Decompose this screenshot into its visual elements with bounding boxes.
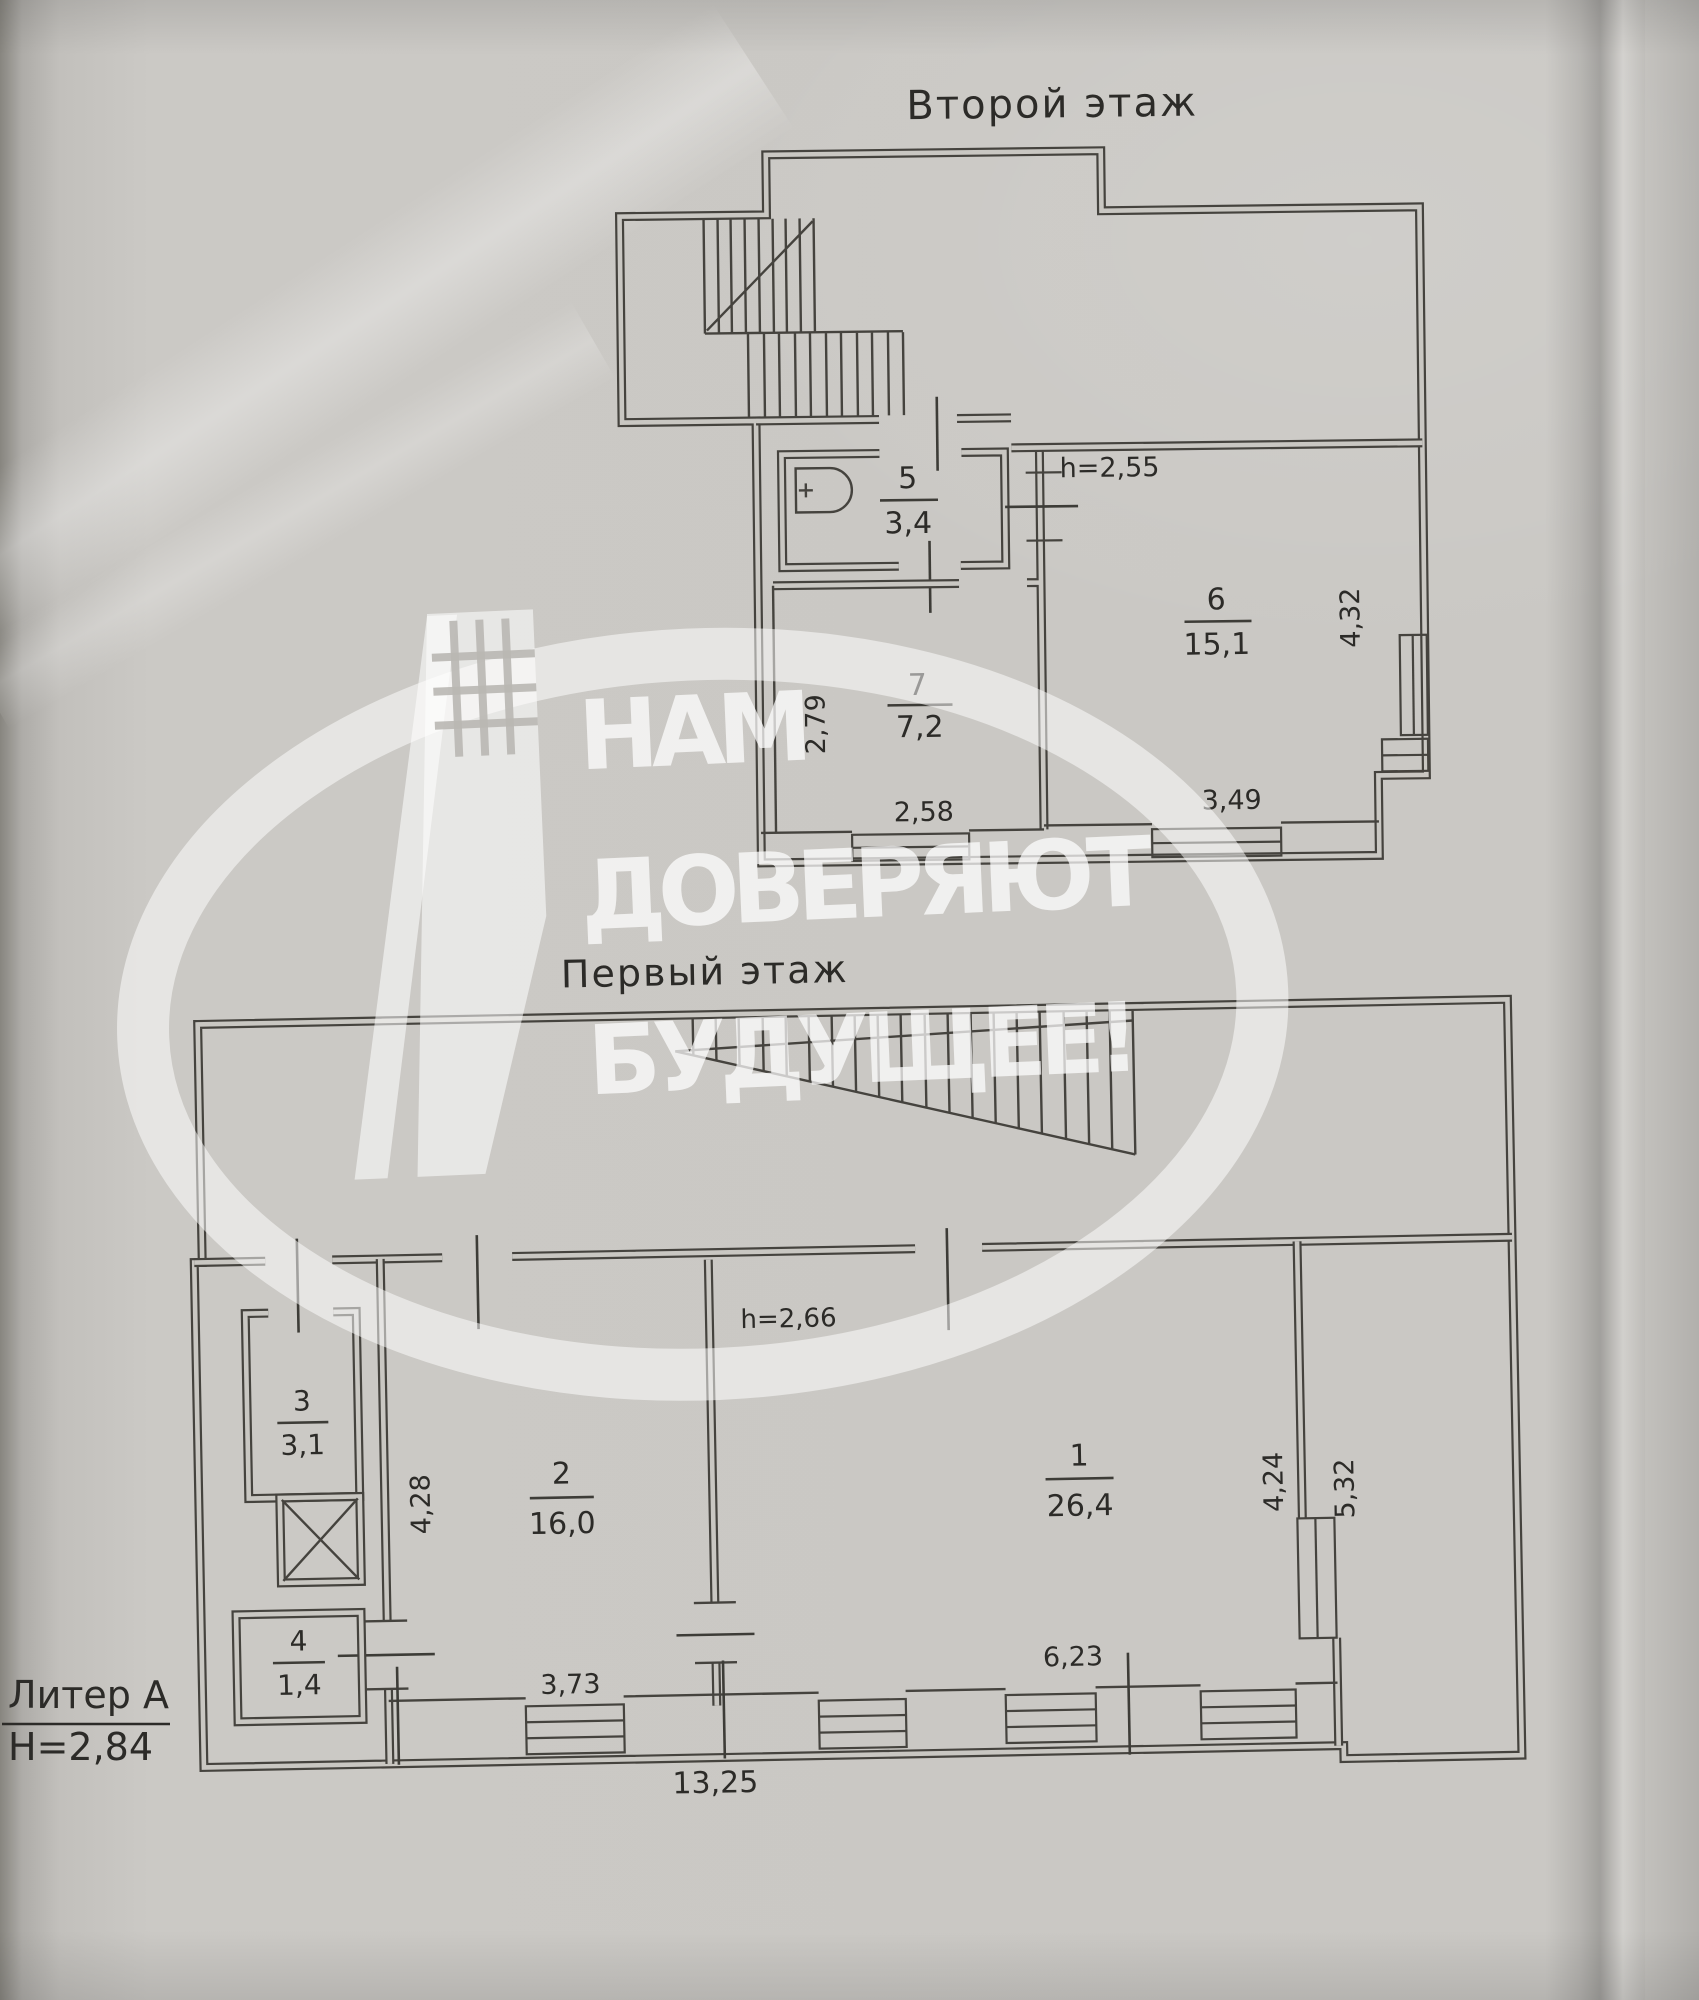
dim-room6-depth: 4,32 [1335,587,1367,647]
shadow-bottom [0,1930,1699,2000]
room7-area: 7,2 [896,710,944,746]
dim-room2-depth: 4,28 [405,1474,437,1535]
floor2-ceiling-height: h=2,55 [1059,452,1159,484]
room2-number: 2 [551,1456,571,1491]
floor1-bottom-walls [389,1683,1338,1701]
stove-icon [280,1496,362,1583]
door-tick [676,1634,754,1635]
room6-number: 6 [1206,582,1226,617]
window-symbol [819,1699,907,1749]
floor2-hall-wall [756,396,1012,473]
floor-plan-drawing: Второй этаж [0,0,1699,2000]
door-tick [937,397,938,471]
room6-area: 15,1 [1183,627,1250,663]
room2-label: 2 16,0 [528,1456,596,1542]
window-symbol [1201,1689,1297,1739]
scanned-floor-plan-page: Второй этаж [0,0,1699,2000]
window-symbol [1382,739,1428,772]
dim-room7-width: 2,58 [894,797,954,829]
legend-building: Литер А [8,1673,169,1717]
paper-edge [1645,0,1699,2000]
dim-tick [723,1660,725,1758]
room3-number: 3 [293,1384,311,1417]
room3-label: 3 3,1 [277,1384,329,1462]
watermark-logo [330,609,557,1179]
dim-tick [1128,1653,1130,1755]
room6-walls [1011,443,1422,448]
room6-label: 6 15,1 [1183,582,1252,663]
legend-floor-height: Н=2,84 [8,1725,153,1769]
window-symbol [1297,1518,1336,1639]
staircase-floor2 [704,217,904,417]
door-tick [477,1235,479,1329]
room4-label: 4 1,4 [272,1624,325,1702]
window-symbol [526,1704,625,1754]
room3-area: 3,1 [280,1428,325,1462]
dim-total-width: 13,25 [672,1765,759,1802]
shadow-top [0,0,1699,55]
dim-side: 5,32 [1329,1458,1361,1519]
room4-area: 1,4 [277,1668,322,1702]
room4-number: 4 [289,1624,307,1657]
room1-label: 1 26,4 [1045,1438,1115,1524]
legend: Литер А Н=2,84 [2,1673,170,1769]
door-tick [338,1654,435,1656]
dim-room2-width: 3,73 [540,1669,601,1701]
dim-room1-depth: 4,24 [1258,1452,1290,1513]
room2-area: 16,0 [529,1506,596,1542]
dim-room1-width: 6,23 [1043,1641,1104,1673]
paper-fold [1545,0,1645,2000]
watermark-line3: БУДУЩЕЕ! [585,982,1134,1118]
floor1-title: Первый этаж [560,947,849,997]
floor1-ceiling-height: h=2,66 [740,1303,837,1335]
room5-number: 5 [898,461,918,496]
room5-label: 5 3,4 [880,461,939,542]
room5-area: 3,4 [884,506,932,542]
room1-area: 26,4 [1046,1488,1113,1524]
watermark-line1: НАМ [576,671,807,793]
sink-icon [796,468,853,513]
dim-tick [397,1667,399,1765]
room1-number: 1 [1069,1438,1089,1473]
floor2-title: Второй этаж [906,80,1198,130]
watermark-line2: ДОВЕРЯЮТ [578,816,1154,953]
window-symbol [1006,1693,1097,1743]
door-tick [929,541,930,613]
